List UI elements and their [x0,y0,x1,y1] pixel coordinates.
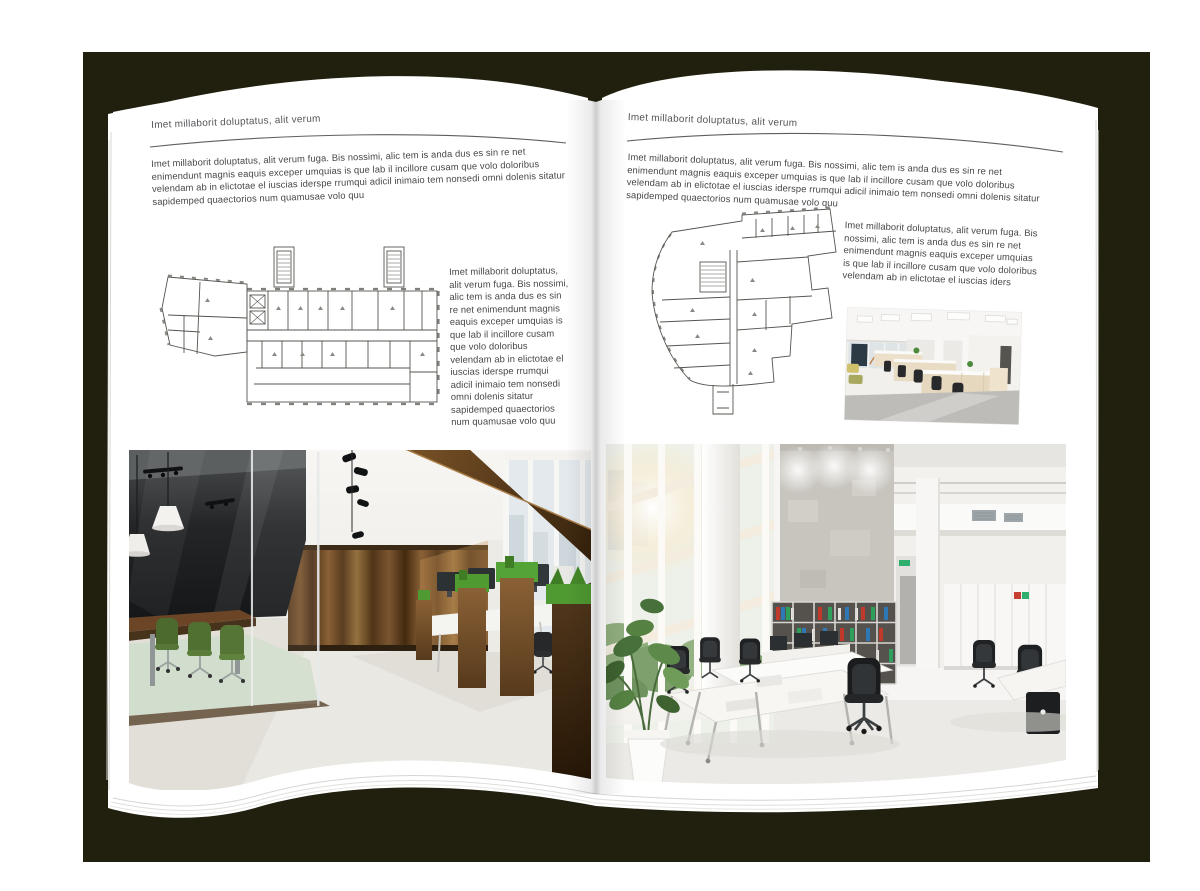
exit-sign [899,560,910,566]
photo-office-small [844,308,1021,425]
left-page-side-text: Imet millaborit doluptatus, alit verum f… [449,264,571,428]
column [702,443,740,705]
photo-office-wood [124,448,598,790]
right-page-side-text: Imet millaborit doluptatus, alit verum f… [842,219,1041,290]
magazine-mockup: Imet millaborit doluptatus, alit verum I… [0,0,1200,891]
book-graphic [0,0,1200,891]
column [916,478,940,668]
cabinet-row [944,584,1066,670]
